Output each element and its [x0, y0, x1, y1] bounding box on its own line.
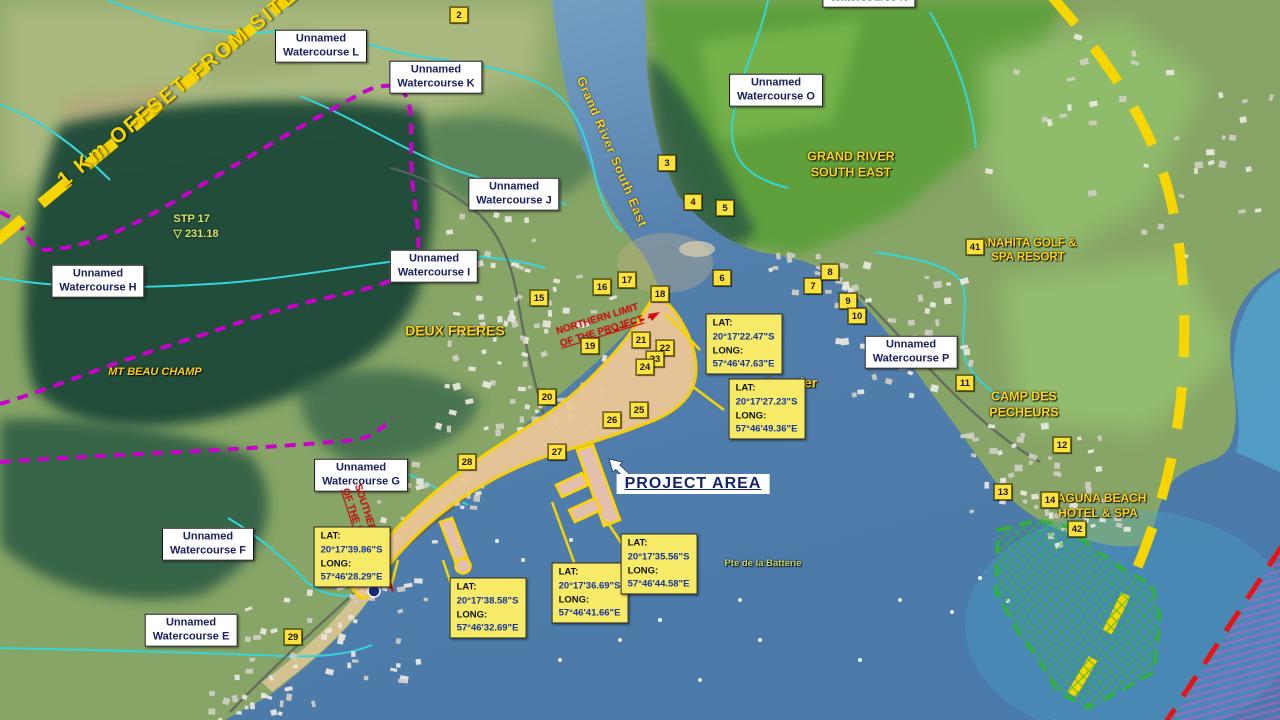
coordinate-value: 20°17'22.47"S	[713, 330, 775, 344]
coordinate-value: 57°46'47.63"E	[713, 358, 775, 372]
map-marker-25: 25	[630, 402, 648, 418]
place-label-pte-de-la-batterie: Pte de la Batterie	[724, 558, 801, 570]
coordinate-field-label: LAT:	[736, 381, 770, 395]
coordinate-row: LONG:57°46'32.69"E	[457, 608, 519, 636]
coordinate-callout: LAT:20°17'36.69"SLONG:57°46'41.66"E	[552, 562, 629, 623]
place-label-line: PECHEURS	[989, 405, 1058, 421]
map-marker-42: 42	[1068, 521, 1086, 537]
coordinate-field-label: LAT:	[713, 316, 747, 330]
river-name-label: Grand River South East	[574, 75, 650, 230]
coordinate-field-label: LONG:	[457, 608, 491, 622]
map-marker-29: 29	[284, 629, 302, 645]
watercourse-label-P: UnnamedWatercourse P	[865, 336, 958, 369]
survey-point-label: STP 17 ▽ 231.18	[173, 212, 218, 242]
place-label-line: DEUX FRERES	[405, 322, 505, 340]
place-label-laguna-beach-hotel-spa: LAGUNA BEACHHOTEL & SPA	[1050, 491, 1147, 521]
coordinate-row: LONG:57°46'41.66"E	[559, 593, 621, 621]
map-marker-10: 10	[848, 308, 866, 324]
coordinate-value: 20°17'36.69"S	[559, 579, 621, 593]
coordinate-field-label: LAT:	[559, 565, 593, 579]
place-label-line: GRAND RIVER	[807, 149, 895, 165]
watercourse-label-line: Unnamed	[737, 76, 815, 90]
watercourse-label-line: Watercourse N	[830, 0, 907, 5]
map-marker-5: 5	[716, 200, 734, 216]
survey-point-name: STP 17	[173, 213, 210, 225]
map-marker-4: 4	[684, 194, 702, 210]
map-marker-16: 16	[593, 279, 611, 295]
coordinate-value: 57°46'32.69"E	[457, 622, 519, 636]
map-marker-8: 8	[821, 264, 839, 280]
coordinate-row: LONG:57°46'28.29"E	[321, 557, 383, 585]
watercourse-label-N: UnnamedWatercourse N	[822, 0, 915, 7]
benchmark-triangle-icon: ▽	[173, 228, 181, 240]
map-marker-11: 11	[956, 375, 974, 391]
map-marker-19: 19	[581, 338, 599, 354]
watercourse-label-E: UnnamedWatercourse E	[145, 614, 238, 647]
project-area-label: PROJECT AREA	[617, 474, 770, 494]
watercourse-label-line: Watercourse L	[283, 46, 359, 60]
map-canvas[interactable]: 1 Km OFFSET FROM SITE Grand River South …	[0, 0, 1280, 720]
map-marker-6: 6	[713, 270, 731, 286]
watercourse-label-line: Watercourse E	[153, 630, 230, 644]
coordinate-row: LONG:57°46'47.63"E	[713, 344, 775, 372]
place-label-line: MT BEAU CHAMP	[108, 366, 202, 380]
coordinate-field-label: LONG:	[559, 593, 593, 607]
watercourse-label-line: Unnamed	[398, 252, 470, 266]
watercourse-label-K: UnnamedWatercourse K	[389, 61, 482, 94]
watercourse-label-line: Watercourse P	[873, 352, 950, 366]
coordinate-field-label: LAT:	[321, 529, 355, 543]
map-marker-24: 24	[636, 359, 654, 375]
map-marker-18: 18	[651, 286, 669, 302]
survey-point-elevation: 231.18	[185, 228, 219, 240]
watercourse-label-I: UnnamedWatercourse I	[390, 250, 478, 283]
coordinate-row: LONG:57°46'49.36"E	[736, 409, 798, 437]
coordinate-value: 57°46'28.29"E	[321, 571, 383, 585]
watercourse-label-line: Unnamed	[283, 32, 359, 46]
watercourse-label-line: Unnamed	[322, 461, 400, 475]
coordinate-callout: LAT:20°17'22.47"SLONG:57°46'47.63"E	[706, 313, 783, 374]
map-marker-2: 2	[450, 7, 468, 23]
coordinate-row: LAT:20°17'35.56"S	[628, 536, 690, 564]
watercourse-label-line: Watercourse H	[59, 281, 136, 295]
place-label-line: LAGUNA BEACH	[1050, 491, 1147, 506]
coordinate-field-label: LONG:	[628, 564, 662, 578]
coordinate-callout: LAT:20°17'39.86"SLONG:57°46'28.29"E	[314, 526, 391, 587]
coordinate-callout: LAT:20°17'35.56"SLONG:57°46'44.58"E	[621, 533, 698, 594]
coordinate-value: 20°17'39.86"S	[321, 543, 383, 557]
coordinate-field-label: LONG:	[736, 409, 770, 423]
map-marker-3: 3	[658, 155, 676, 171]
coordinate-row: LAT:20°17'36.69"S	[559, 565, 621, 593]
map-marker-41: 41	[966, 239, 984, 255]
place-label-line: HOTEL & SPA	[1050, 506, 1147, 521]
coordinate-value: 57°46'41.66"E	[559, 607, 621, 621]
place-label-line: Pte de la Batterie	[724, 558, 801, 570]
map-marker-14: 14	[1041, 492, 1059, 508]
coordinate-value: 57°46'44.58"E	[628, 578, 690, 592]
map-marker-26: 26	[603, 412, 621, 428]
place-label-line: SPA RESORT	[979, 251, 1076, 265]
map-marker-9: 9	[839, 293, 857, 309]
map-marker-7: 7	[804, 278, 822, 294]
watercourse-label-H: UnnamedWatercourse H	[51, 265, 144, 298]
coordinate-row: LAT:20°17'38.58"S	[457, 580, 519, 608]
place-label-camp-des-pecheurs: CAMP DESPECHEURS	[989, 389, 1058, 420]
coordinate-row: LONG:57°46'44.58"E	[628, 564, 690, 592]
offset-distance-label: 1 Km OFFSET FROM SITE	[53, 0, 303, 192]
place-label-deux-freres: DEUX FRERES	[405, 322, 505, 340]
coordinate-callout: LAT:20°17'27.23"SLONG:57°46'49.36"E	[729, 378, 806, 439]
coordinate-field-label: LONG:	[713, 344, 747, 358]
coordinate-value: 57°46'49.36"E	[736, 423, 798, 437]
place-label-line: SOUTH EAST	[807, 165, 895, 181]
watercourse-label-line: Unnamed	[170, 530, 246, 544]
place-label-anahita-golf-spa-resort: ANAHITA GOLF &SPA RESORT	[979, 237, 1076, 266]
map-marker-15: 15	[530, 290, 548, 306]
watercourse-label-line: Watercourse K	[397, 77, 474, 91]
watercourse-label-line: Watercourse I	[398, 266, 470, 280]
coordinate-row: LAT:20°17'27.23"S	[736, 381, 798, 409]
watercourse-label-line: Unnamed	[476, 180, 551, 194]
place-label-grand-river-south-east: GRAND RIVERSOUTH EAST	[807, 149, 895, 180]
watercourse-label-line: Watercourse J	[476, 194, 551, 208]
place-label-line: ANAHITA GOLF &	[979, 237, 1076, 251]
map-marker-17: 17	[618, 272, 636, 288]
coordinate-row: LAT:20°17'22.47"S	[713, 316, 775, 344]
coordinate-value: 20°17'38.58"S	[457, 594, 519, 608]
map-marker-13: 13	[994, 484, 1012, 500]
coordinate-field-label: LONG:	[321, 557, 355, 571]
coordinate-callout: LAT:20°17'38.58"SLONG:57°46'32.69"E	[450, 577, 527, 638]
place-label-line: CAMP DES	[989, 389, 1058, 405]
coordinate-field-label: LAT:	[628, 536, 662, 550]
watercourse-label-line: Unnamed	[153, 616, 230, 630]
coordinate-field-label: LAT:	[457, 580, 491, 594]
watercourse-label-line: Watercourse O	[737, 90, 815, 104]
coordinate-value: 20°17'27.23"S	[736, 395, 798, 409]
watercourse-label-line: Unnamed	[59, 267, 136, 281]
place-label-mt-beau-champ: MT BEAU CHAMP	[108, 366, 202, 380]
watercourse-label-line: Watercourse F	[170, 544, 246, 558]
watercourse-label-line: Unnamed	[873, 338, 950, 352]
watercourse-label-F: UnnamedWatercourse F	[162, 528, 254, 561]
coordinate-value: 20°17'35.56"S	[628, 550, 690, 564]
coordinate-row: LAT:20°17'39.86"S	[321, 529, 383, 557]
map-marker-12: 12	[1053, 437, 1071, 453]
watercourse-label-J: UnnamedWatercourse J	[468, 178, 559, 211]
map-marker-20: 20	[538, 389, 556, 405]
watercourse-label-O: UnnamedWatercourse O	[729, 74, 823, 107]
watercourse-label-line: Unnamed	[397, 63, 474, 77]
watercourse-label-L: UnnamedWatercourse L	[275, 30, 367, 63]
map-marker-28: 28	[458, 454, 476, 470]
map-marker-27: 27	[548, 444, 566, 460]
map-marker-21: 21	[632, 332, 650, 348]
